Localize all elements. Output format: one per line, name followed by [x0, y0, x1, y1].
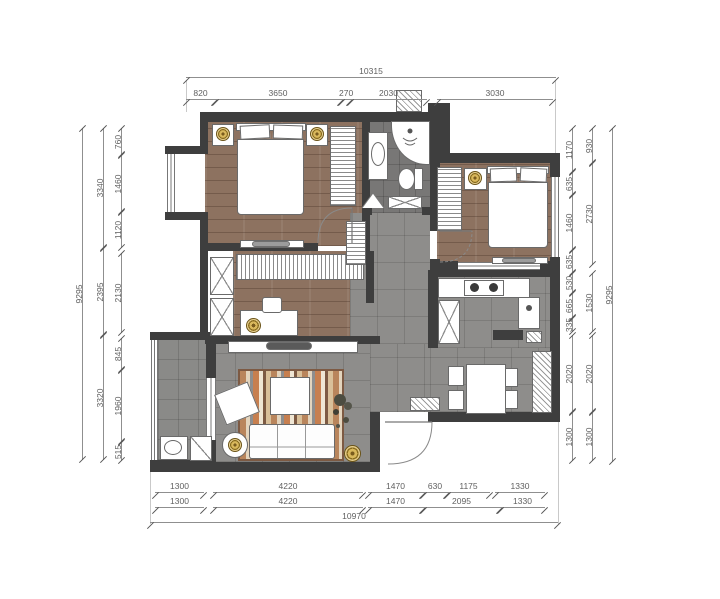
wall-segment — [370, 412, 380, 472]
window — [551, 177, 559, 257]
dim-label: 635 — [564, 176, 574, 190]
dim-top-seg: 3030 — [437, 88, 553, 100]
dim-label: 3650 — [215, 88, 341, 98]
double-bed — [488, 182, 548, 248]
wall-segment — [428, 270, 438, 348]
dim-label: 1300 — [564, 427, 574, 446]
dim-label: 930 — [584, 138, 594, 152]
washer-cabinet — [388, 196, 422, 209]
dim-top-seg: 820 — [186, 88, 215, 100]
dim-label: 335 — [564, 318, 574, 332]
dim-right-seg: 1300 — [592, 412, 604, 461]
tv — [502, 258, 536, 263]
balcony-sliding-door — [206, 378, 216, 440]
wall-segment — [165, 146, 208, 154]
wall-segment — [200, 212, 208, 338]
storage-cabinet — [210, 257, 234, 295]
sink-basin — [371, 142, 385, 166]
wall-segment — [366, 251, 374, 303]
wardrobe — [330, 126, 356, 206]
dim-bottom-seg: 1330 — [495, 481, 545, 493]
dim-label: 630 — [423, 481, 447, 491]
dim-label: 4220 — [213, 481, 363, 491]
wall-segment — [200, 112, 208, 148]
bay-window — [167, 154, 175, 212]
dim-right-seg: 1460 — [572, 195, 584, 250]
dim-label: 1530 — [584, 293, 594, 312]
dim-right-seg: 665 — [572, 293, 584, 318]
dim-label: 845 — [113, 347, 123, 361]
dim-label: 1960 — [113, 397, 123, 416]
dim-bottom-seg: 630 — [423, 481, 447, 493]
dim-label: 515 — [113, 444, 123, 458]
double-bed — [237, 139, 304, 215]
dim-left-seg: 1460 — [121, 155, 133, 212]
dining-chair — [448, 390, 464, 410]
dim-label: 665 — [564, 298, 574, 312]
dim-bottom-seg: 2095 — [423, 496, 500, 508]
dim-right-seg: 1300 — [572, 412, 584, 461]
storage-cabinet — [210, 298, 234, 336]
kitchen-sink — [518, 297, 540, 329]
kitchen-cabinet — [438, 300, 460, 344]
balcony-window — [151, 340, 158, 460]
wardrobe — [437, 167, 462, 231]
desk-chair — [262, 297, 282, 313]
coffee-table — [270, 377, 310, 415]
gold-medallion-icon — [228, 438, 242, 452]
dim-label: 1170 — [564, 141, 574, 159]
dim-label: 3030 — [437, 88, 553, 98]
dim-label: 1330 — [500, 496, 545, 506]
dim-top-seg: 2030 — [350, 88, 427, 100]
dim-left-seg: 515 — [121, 442, 133, 461]
dim-label: 270 — [339, 88, 348, 98]
dim-bottom-seg: 4220 — [213, 481, 363, 493]
dim-label: 635 — [564, 254, 574, 268]
wall-segment — [430, 153, 560, 163]
dim-right-seg: 930 — [592, 128, 604, 163]
dim-label: 3340 — [95, 179, 105, 198]
burner-icon — [489, 283, 498, 292]
dim-label: 2030 — [350, 88, 427, 98]
gold-pouf — [344, 445, 361, 462]
dim-bottom-seg: 4220 — [213, 496, 363, 508]
wall-segment — [206, 338, 216, 378]
dim-label: 1330 — [495, 481, 545, 491]
dim-label: 2395 — [95, 282, 105, 301]
plant — [334, 394, 346, 406]
dining-table — [466, 364, 506, 414]
gold-medallion-icon — [468, 171, 482, 185]
wall-segment — [206, 462, 380, 472]
pillow — [490, 168, 517, 183]
dim-label: 3320 — [95, 388, 105, 407]
dim-bottom-seg: 1300 — [155, 481, 204, 493]
wall-segment — [150, 332, 210, 340]
dim-left-seg: 2130 — [121, 253, 133, 333]
dim-left-seg: 760 — [121, 128, 133, 155]
tv — [266, 342, 312, 350]
entry-door-arc — [388, 422, 432, 464]
dim-label: 2730 — [584, 205, 594, 224]
pillow — [240, 124, 271, 140]
dim-top-seg: 3650 — [215, 88, 341, 100]
dining-chair — [448, 366, 464, 386]
dim-right-overall: 9295 — [612, 128, 624, 462]
dining-chair — [505, 390, 518, 409]
sink-basin — [164, 440, 182, 455]
dim-label: 1460 — [113, 174, 123, 193]
burner-icon — [470, 283, 479, 292]
dim-label: 4220 — [213, 496, 363, 506]
dim-label: 9295 — [604, 286, 614, 305]
dining-chair — [505, 368, 518, 387]
dim-top-seg: 270 — [341, 88, 350, 100]
hall-closet — [346, 221, 366, 265]
pillow — [520, 167, 548, 182]
dim-label: 9295 — [74, 285, 84, 304]
extension-line — [555, 80, 556, 153]
dim-right-seg: 2020 — [592, 335, 604, 412]
wall-segment — [150, 460, 214, 472]
dim-bottom-seg: 1175 — [447, 481, 490, 493]
dim-top-overall: 10315 — [186, 66, 556, 78]
dim-label: 1300 — [155, 496, 204, 506]
dim-left-seg: 1120 — [121, 212, 133, 248]
dim-label: 2130 — [113, 284, 123, 303]
dim-right-seg: 1170 — [572, 128, 584, 172]
gold-medallion-icon — [246, 318, 261, 333]
dim-label: 1300 — [155, 481, 204, 491]
dim-label: 10315 — [186, 66, 556, 76]
dim-label: 1470 — [368, 481, 423, 491]
sofa — [249, 424, 335, 459]
wall-segment — [550, 153, 560, 177]
dim-label: 2020 — [584, 364, 594, 383]
dim-right-seg: 2730 — [592, 163, 604, 265]
tv — [252, 241, 290, 247]
gold-medallion-icon — [216, 127, 230, 141]
dim-label: 1470 — [368, 496, 423, 506]
toilet-bowl — [398, 168, 415, 190]
dim-left-seg: 845 — [121, 338, 133, 370]
dim-bottom-seg: 1330 — [500, 496, 545, 508]
shoe-cabinet — [532, 351, 552, 413]
dim-bottom-seg: 1300 — [155, 496, 204, 508]
wall-segment — [362, 207, 372, 215]
dim-bottom-seg: 1470 — [368, 496, 423, 508]
dim-label: 2020 — [564, 364, 574, 383]
dim-label: 2095 — [423, 496, 500, 506]
kitchen-counter-wall-stub — [493, 330, 523, 340]
dim-label: 760 — [113, 134, 123, 148]
extension-line — [558, 422, 559, 524]
wall-segment — [437, 270, 550, 277]
dim-label: 820 — [186, 88, 215, 98]
dim-left-overall: 9295 — [82, 128, 94, 460]
kitchen-cabinet — [526, 331, 542, 343]
dim-right-seg: 2020 — [572, 335, 584, 412]
floor-plan-canvas: 10315 820 3650 270 2030 3030 1300 4220 1… — [0, 0, 720, 599]
dim-label: 1175 — [447, 481, 490, 491]
toilet-tank — [414, 168, 423, 190]
dim-bottom-seg: 1470 — [368, 481, 423, 493]
dim-right-seg: 1530 — [592, 273, 604, 332]
entry-bench — [410, 397, 440, 411]
dim-right-seg: 335 — [572, 318, 584, 332]
pillow — [273, 124, 303, 139]
washing-machine — [190, 436, 212, 461]
dim-bottom-overall: 10970 — [150, 511, 558, 523]
dim-label: 530 — [564, 276, 574, 290]
dim-left-seg: 1960 — [121, 370, 133, 442]
faucet-icon — [526, 305, 532, 311]
dim-label: 1460 — [564, 213, 574, 232]
dim-label: 10970 — [150, 511, 558, 521]
gold-medallion-icon — [310, 127, 324, 141]
wardrobe — [236, 254, 364, 280]
dim-label: 1300 — [584, 427, 594, 446]
dim-label: 1120 — [113, 221, 123, 239]
